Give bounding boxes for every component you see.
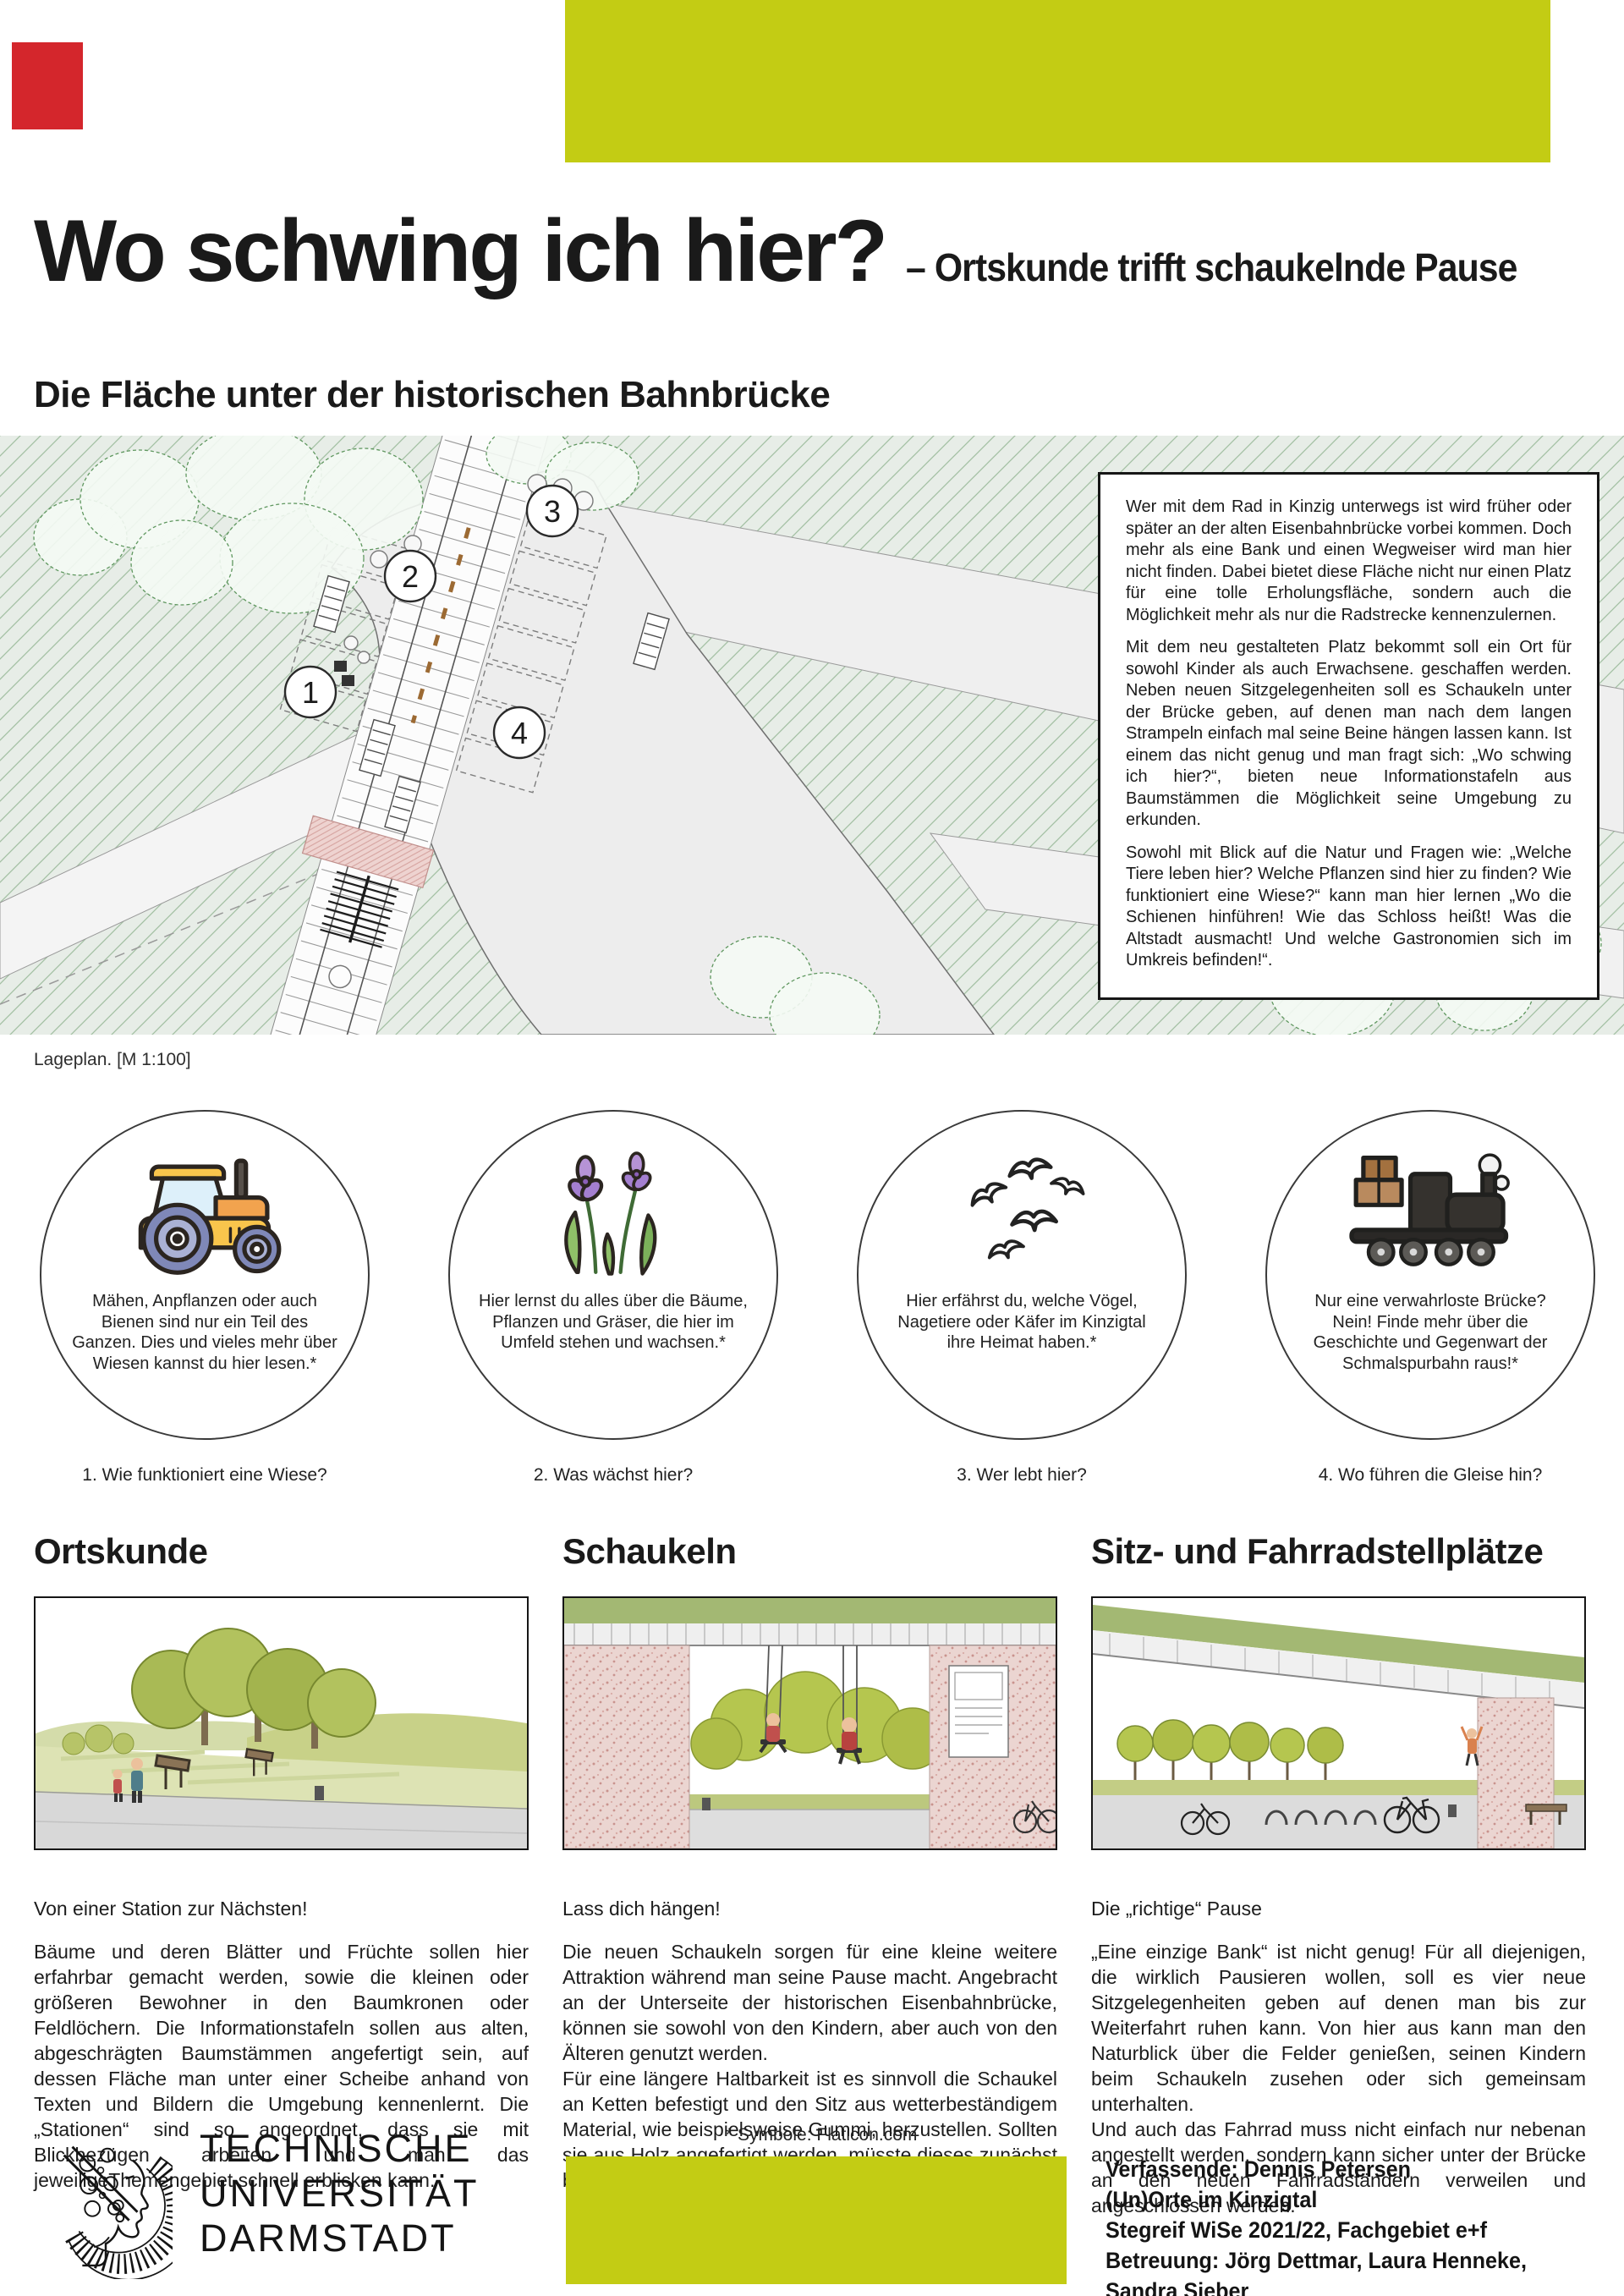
section-heading-schaukeln: Schaukeln [562,1531,737,1572]
accent-bar-bottom [566,2156,1067,2284]
figure-caption-stellplaetze: Die „richtige“ Pause [1091,1898,1262,1920]
station-caption-4: 4. Wo führen die Gleise hin? [1253,1465,1608,1486]
train-icon [1346,1140,1515,1284]
symbols-credit-note: * Symbole: Flaticon.com [726,2125,917,2145]
intro-paragraph-3: Sowohl mit Blick auf die Natur und Frage… [1126,843,1572,972]
intro-paragraph-2: Mit dem neu gestalteten Platz bekommt so… [1126,637,1572,832]
illustration-schaukeln [562,1596,1057,1850]
plan-marker-4-label: 4 [511,716,528,750]
flower-icon [533,1140,694,1284]
poster-title: Wo schwing ich hier? [34,201,886,302]
credit-project: (Un)Orte im Kinzigtal [1106,2184,1598,2215]
poster-subheading: Die Fläche unter der historischen Bahnbr… [34,374,830,416]
tu-wordmark-line1: TECHNISCHE [200,2126,480,2171]
plan-marker-3-label: 3 [544,494,561,529]
section-body-schaukeln: Die neuen Schaukeln sorgen für eine klei… [562,1939,1057,2193]
station-circle-wiese: Mähen, Anpflanzen oder auch Bienen sind … [40,1110,370,1440]
section-heading-sitzplaetze: Sitz- und Fahrradstellplätze [1091,1531,1543,1572]
plan-marker-1-label: 1 [302,675,319,710]
figure-caption-schaukeln: Lass dich hängen! [562,1898,721,1920]
tu-darmstadt-logo [39,2112,173,2283]
tu-wordmark-line3: DARMSTADT [200,2216,480,2260]
station-circle-tiere: Hier erfährst du, welche Vögel, Nagetier… [857,1110,1187,1440]
illustration-ortskunde [34,1596,529,1850]
credit-authors: Verfassende: Dennis Petersen [1106,2154,1598,2184]
tu-wordmark-line2: UNIVERSITÄT [200,2171,480,2216]
station-text: Nur eine verwahrloste Brücke? Nein! Find… [1293,1291,1567,1374]
birds-icon [937,1140,1106,1284]
body-paragraph: „Eine einzige Bank“ ist nicht genug! Für… [1091,1939,1586,2117]
tu-darmstadt-wordmark: TECHNISCHE UNIVERSITÄT DARMSTADT [200,2126,480,2260]
tractor-icon [120,1140,289,1284]
credit-advisors: Betreuung: Jörg Dettmar, Laura Henneke, … [1106,2245,1598,2296]
station-circle-gleise: Nur eine verwahrloste Brücke? Nein! Find… [1265,1110,1595,1440]
credits-block: Verfassende: Dennis Petersen (Un)Orte im… [1106,2154,1598,2296]
station-text: Hier erfährst du, welche Vögel, Nagetier… [885,1291,1159,1354]
accent-bar-top [565,0,1550,162]
red-accent-square [12,42,83,129]
station-circle-pflanzen: Hier lernst du alles über die Bäume, Pfl… [448,1110,778,1440]
plan-marker-2-label: 2 [402,559,419,594]
poster-title-suffix: – Ortskunde trifft schaukelnde Pause [906,244,1517,290]
intro-paragraph-1: Wer mit dem Rad in Kinzig unterwegs ist … [1126,497,1572,626]
section-heading-ortskunde: Ortskunde [34,1531,208,1572]
credit-course: Stegreif WiSe 2021/22, Fachgebiet e+f [1106,2215,1598,2245]
info-panel [949,1666,1008,1757]
athena-icon [39,2112,173,2279]
plan-caption: Lageplan. [M 1:100] [34,1050,191,1070]
station-caption-1: 1. Wie funktioniert eine Wiese? [27,1465,382,1486]
body-paragraph: Die neuen Schaukeln sorgen für eine klei… [562,1939,1057,2066]
station-text: Mähen, Anpflanzen oder auch Bienen sind … [68,1291,342,1374]
figure-caption-ortskunde: Von einer Station zur Nächsten! [34,1898,307,1920]
poster: Wo schwing ich hier? – Ortskunde trifft … [0,0,1624,2296]
title-row: Wo schwing ich hier? – Ortskunde trifft … [34,201,1616,302]
station-caption-2: 2. Was wächst hier? [436,1465,791,1486]
illustration-stellplaetze [1091,1596,1586,1850]
station-text: Hier lernst du alles über die Bäume, Pfl… [476,1291,750,1354]
station-caption-3: 3. Wer lebt hier? [844,1465,1199,1486]
intro-text-box: Wer mit dem Rad in Kinzig unterwegs ist … [1098,472,1599,1000]
